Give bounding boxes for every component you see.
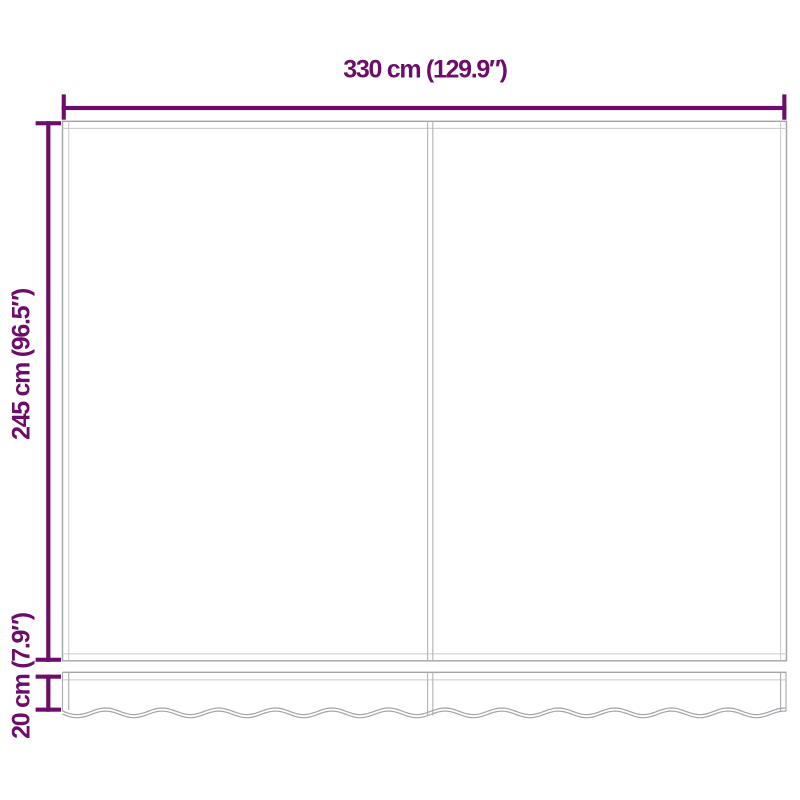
svg-text:245 cm (96.5″): 245 cm (96.5″) [8,288,36,440]
svg-text:330 cm (129.9″): 330 cm (129.9″) [343,56,507,84]
svg-text:20 cm (7.9″): 20 cm (7.9″) [8,612,36,739]
